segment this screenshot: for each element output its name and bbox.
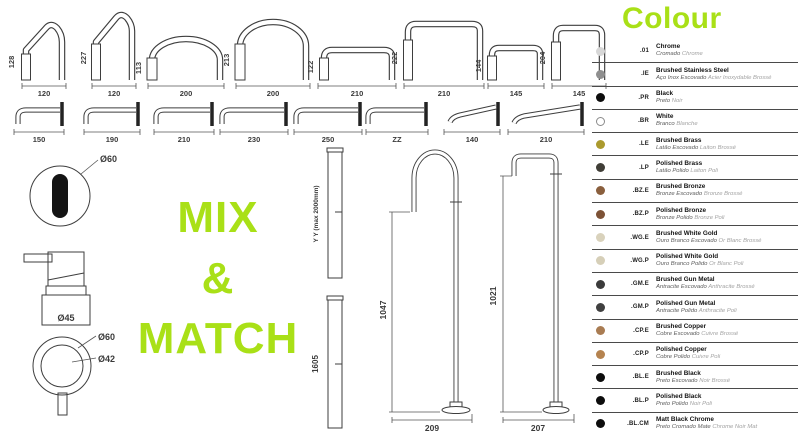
- colour-swatch: [596, 140, 605, 149]
- colour-swatch: [596, 70, 605, 79]
- svg-text:204: 204: [538, 51, 547, 64]
- colour-row-cpe: .CP.E Brushed CopperCobre Escovado Cuivr…: [592, 320, 798, 343]
- extension-column-1605: 1605: [311, 296, 343, 428]
- colour-name-pt: Bronze Polido: [656, 215, 693, 221]
- colour-code: .BL.CM: [615, 421, 649, 427]
- colour-name-pt: Cobre Polido: [656, 354, 690, 360]
- colour-row-01: .01 ChromeCromado Chrome: [592, 40, 798, 63]
- colour-name-fr: Noir Brossé: [699, 378, 730, 384]
- colour-name-fr: Or Blanc Brossé: [719, 238, 762, 244]
- colour-name: Polished White Gold: [656, 253, 798, 261]
- colour-name: Polished Black: [656, 393, 798, 401]
- colour-name: Black: [656, 90, 798, 98]
- colour-code: .LE: [615, 141, 649, 147]
- colour-name: Brushed Black: [656, 370, 798, 378]
- colour-name-pt: Bronze Escovado: [656, 191, 702, 197]
- svg-text:210: 210: [351, 89, 364, 98]
- colour-name-fr: Anthracite Poli: [699, 308, 737, 314]
- colour-name: Brushed Brass: [656, 137, 798, 145]
- mix-and-match-headline: MIX & MATCH: [128, 188, 308, 370]
- colour-name-fr: Cuivre Poli: [692, 354, 720, 360]
- svg-text:144: 144: [474, 59, 483, 72]
- svg-text:120: 120: [108, 89, 121, 98]
- colour-row-bzp: .BZ.P Polished BronzeBronze Polido Bronz…: [592, 203, 798, 226]
- colour-code: .BZ.E: [615, 188, 649, 194]
- deck-spout-5: 122 210: [306, 50, 396, 98]
- svg-text:200: 200: [180, 89, 193, 98]
- colour-swatch: [596, 256, 605, 265]
- colour-row-br: .BR WhiteBranco Blanche: [592, 110, 798, 133]
- colour-name-fr: Bronze Poli: [694, 215, 724, 221]
- colour-name-pt: Antracite Polido: [656, 308, 697, 314]
- colour-name-pt: Preto Cromado Mate: [656, 424, 711, 430]
- colour-code: .GM.E: [615, 281, 649, 287]
- colour-code: .CP.P: [615, 351, 649, 357]
- colour-swatch: [596, 186, 605, 195]
- colour-row-blp: .BL.P Polished BlackPreto Polido Noir Po…: [592, 389, 798, 412]
- colour-name-pt: Antracite Escovado: [656, 284, 707, 290]
- colour-name-pt: Preto: [656, 98, 670, 104]
- deck-spout-4: 213 200: [222, 22, 310, 98]
- colour-name-pt: Ouro Branco Polido: [656, 261, 707, 267]
- colour-name-pt: Cromado: [656, 51, 680, 57]
- svg-text:210: 210: [540, 135, 553, 144]
- colour-name: Brushed White Gold: [656, 230, 798, 238]
- svg-text:200: 200: [267, 89, 280, 98]
- colour-name: Chrome: [656, 43, 798, 51]
- catalog-page: 128 120 227 120 113 200 213: [0, 0, 800, 434]
- colour-name-fr: Chrome Noir Mat: [712, 424, 757, 430]
- colour-name-fr: Laiton Brossé: [700, 145, 736, 151]
- colour-name-pt: Latão Polido: [656, 168, 689, 174]
- colour-code: .IE: [615, 71, 649, 77]
- colour-name-pt: Ouro Branco Escovado: [656, 238, 717, 244]
- ampersand-line: &: [128, 249, 308, 310]
- colour-name-pt: Branco: [656, 121, 675, 127]
- colour-legend-title: Colour: [622, 2, 798, 36]
- svg-text:113: 113: [134, 62, 143, 74]
- colour-name-pt: Cobre Escovado: [656, 331, 700, 337]
- colour-name: White: [656, 113, 798, 121]
- svg-text:209: 209: [425, 423, 439, 433]
- colour-code: .PR: [615, 95, 649, 101]
- wall-spout-8: 210: [508, 102, 584, 144]
- colour-row-cpp: .CP.P Polished CopperCobre Polido Cuivre…: [592, 343, 798, 366]
- colour-code: .CP.E: [615, 328, 649, 334]
- colour-swatch: [596, 326, 605, 335]
- colour-legend: Colour .01 ChromeCromado Chrome .IE Brus…: [592, 0, 798, 434]
- svg-text:120: 120: [38, 89, 51, 98]
- wall-spout-7: 140: [444, 102, 500, 144]
- colour-code: .BR: [615, 118, 649, 124]
- colour-row-wge: .WG.E Brushed White GoldOuro Branco Esco…: [592, 226, 798, 249]
- colour-swatch: [596, 163, 605, 172]
- svg-text:213: 213: [222, 54, 231, 67]
- svg-text:1021: 1021: [488, 286, 498, 305]
- svg-text:Ø60: Ø60: [98, 332, 115, 342]
- wall-spout-2: 190: [84, 102, 140, 144]
- svg-text:Ø42: Ø42: [98, 354, 115, 364]
- colour-name-pt: Latão Escovado: [656, 145, 698, 151]
- colour-swatch: [596, 47, 605, 56]
- svg-text:230: 230: [248, 135, 261, 144]
- colour-row-wgp: .WG.P Polished White GoldOuro Branco Pol…: [592, 250, 798, 273]
- colour-swatch: [596, 233, 605, 242]
- colour-name: Brushed Bronze: [656, 183, 798, 191]
- floor-spout-angular-diagram: 1021 207: [490, 146, 585, 434]
- colour-name: Brushed Copper: [656, 323, 798, 331]
- colour-name-pt: Preto Escovado: [656, 378, 698, 384]
- colour-name-fr: Noir Poli: [690, 401, 712, 407]
- colour-name-fr: Noir: [672, 98, 683, 104]
- colour-swatch: [596, 419, 605, 428]
- colour-name-fr: Chrome: [682, 51, 703, 57]
- colour-code: .WG.E: [615, 235, 649, 241]
- svg-text:128: 128: [7, 56, 16, 69]
- colour-name-fr: Anthracite Brossé: [708, 284, 755, 290]
- colour-code: .BL.P: [615, 398, 649, 404]
- svg-text:145: 145: [573, 89, 586, 98]
- wall-spout-1: 150: [14, 102, 64, 144]
- svg-text:1047: 1047: [378, 300, 388, 319]
- wall-spout-6: ZZ: [366, 102, 428, 144]
- svg-text:145: 145: [510, 89, 523, 98]
- colour-code: .BZ.P: [615, 211, 649, 217]
- colour-row-blcm: .BL.CM Matt Black ChromePreto Cromado Ma…: [592, 413, 798, 434]
- mix-line: MIX: [128, 188, 308, 249]
- colour-name: Polished Bronze: [656, 207, 798, 215]
- colour-row-le: .LE Brushed BrassLatão Escovado Laiton B…: [592, 133, 798, 156]
- colour-name-fr: Or Blanc Poli: [709, 261, 743, 267]
- deck-spouts-diagram: 128 120 227 120 113 200 213: [0, 6, 610, 100]
- wall-spout-4: 230: [220, 102, 288, 144]
- svg-text:122: 122: [306, 61, 315, 74]
- colour-name-fr: Blanche: [676, 121, 697, 127]
- colour-row-bze: .BZ.E Brushed BronzeBronze Escovado Bron…: [592, 180, 798, 203]
- colour-code: .BL.E: [615, 374, 649, 380]
- floor-spout-curved-diagram: 1047 209: [380, 140, 480, 434]
- extension-columns-diagram: Y Y (max 2000mm) 1605: [300, 142, 360, 434]
- colour-swatch: [596, 117, 605, 126]
- svg-text:222: 222: [390, 52, 399, 65]
- colour-row-ble: .BL.E Brushed BlackPreto Escovado Noir B…: [592, 366, 798, 389]
- colour-name-pt: Preto Polido: [656, 401, 688, 407]
- colour-name-fr: Bronze Brossé: [704, 191, 743, 197]
- wall-spout-3: 210: [154, 102, 214, 144]
- colour-name: Matt Black Chrome: [656, 416, 798, 424]
- colour-name-fr: Cuivre Brossé: [701, 331, 738, 337]
- deck-spout-1: 128 120: [7, 25, 66, 98]
- colour-code: .01: [615, 48, 649, 54]
- colour-name: Polished Brass: [656, 160, 798, 168]
- colour-swatch: [596, 93, 605, 102]
- colour-row-pr: .PR BlackPreto Noir: [592, 87, 798, 110]
- svg-text:Ø60: Ø60: [100, 154, 117, 164]
- svg-text:227: 227: [79, 52, 88, 65]
- svg-text:Y Y (max 2000mm): Y Y (max 2000mm): [313, 185, 320, 242]
- colour-swatch: [596, 210, 605, 219]
- colour-row-lp: .LP Polished BrassLatão Polido Laiton Po…: [592, 156, 798, 179]
- colour-code: .LP: [615, 165, 649, 171]
- colour-code: .WG.P: [615, 258, 649, 264]
- colour-name: Polished Gun Metal: [656, 300, 798, 308]
- colour-name: Brushed Stainless Steel: [656, 67, 798, 75]
- colour-name-fr: Acier Inoxydable Brossé: [708, 75, 772, 81]
- deck-spout-3: 113 200: [134, 39, 224, 98]
- dispenser-component: Ø45: [24, 252, 90, 325]
- svg-text:210: 210: [178, 135, 191, 144]
- extension-column-yy: Y Y (max 2000mm): [313, 148, 343, 278]
- colour-row-gme: .GM.E Brushed Gun MetalAntracite Escovad…: [592, 273, 798, 296]
- svg-text:Ø45: Ø45: [57, 313, 74, 323]
- svg-text:207: 207: [531, 423, 545, 433]
- colour-name: Polished Copper: [656, 346, 798, 354]
- colour-swatch: [596, 396, 605, 405]
- colour-swatch: [596, 373, 605, 382]
- deck-spout-7: 144 145: [474, 48, 544, 98]
- colour-name-fr: Laiton Poli: [690, 168, 718, 174]
- colour-name-pt: Aço Inox Escovado: [656, 75, 706, 81]
- deck-spout-6: 222 210: [390, 24, 484, 98]
- colour-name: Brushed Gun Metal: [656, 276, 798, 284]
- svg-text:1605: 1605: [311, 355, 320, 373]
- wall-spout-5: 250: [294, 102, 362, 144]
- colour-code: .GM.P: [615, 304, 649, 310]
- colour-row-gmp: .GM.P Polished Gun MetalAntracite Polido…: [592, 296, 798, 319]
- svg-text:210: 210: [438, 89, 451, 98]
- colour-row-ie: .IE Brushed Stainless SteelAço Inox Esco…: [592, 63, 798, 86]
- colour-swatch: [596, 280, 605, 289]
- colour-swatch: [596, 350, 605, 359]
- knob-component: Ø60 Ø42: [33, 332, 115, 415]
- match-line: MATCH: [128, 309, 308, 370]
- deck-spout-2: 227 120: [79, 15, 136, 98]
- sensor-component: Ø60: [30, 154, 117, 226]
- colour-swatch: [596, 303, 605, 312]
